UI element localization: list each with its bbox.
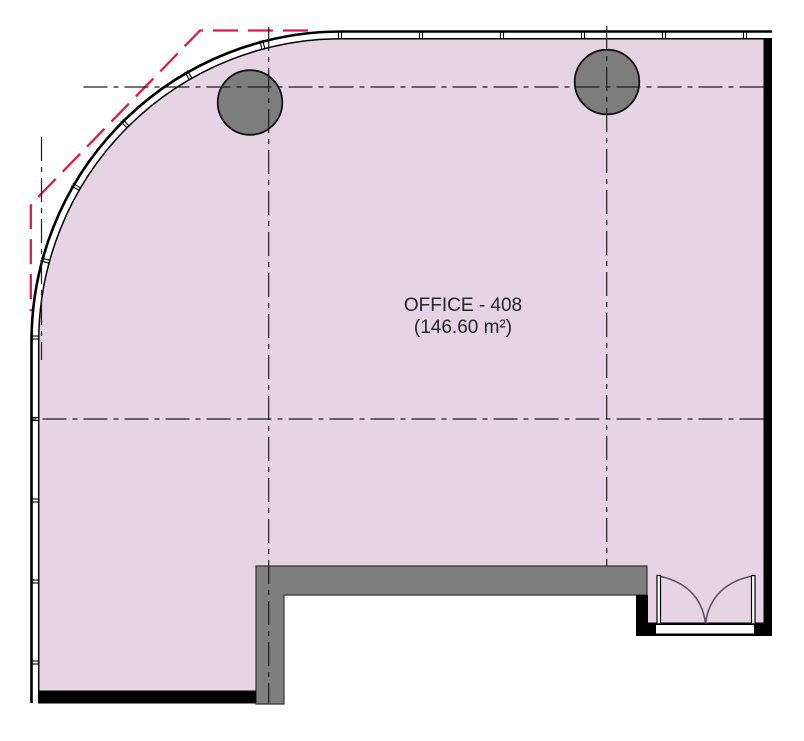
svg-text:(146.60 m²): (146.60 m²): [414, 317, 512, 338]
svg-text:OFFICE - 408: OFFICE - 408: [404, 295, 522, 316]
